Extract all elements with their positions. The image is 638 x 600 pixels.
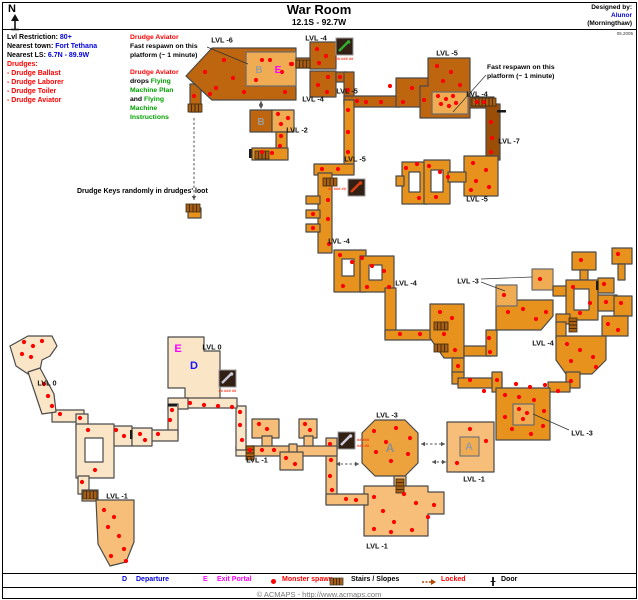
platform-respawn-note: Fast respawn on this platform (~ 1 minut… (487, 63, 555, 81)
aviator-respawn-title: Drudge Aviator (130, 33, 198, 42)
platform-respawn-line1: Fast respawn on this (487, 63, 555, 72)
legend-departure-label: Departure (136, 576, 169, 583)
drudges-header: Drudges: (7, 60, 97, 69)
legend-divider-bottom (2, 587, 636, 588)
legend-monster-spawn-label: Monster spawn (282, 576, 333, 583)
platform-respawn-line2: platform (~ 1 minute) (487, 72, 555, 81)
aviator-respawn-line1: Fast respawn on this (130, 42, 198, 51)
nearest-ls-row: Nearest LS: 6.7N - 89.9W (7, 51, 97, 60)
page-border (2, 2, 637, 599)
drudge-keys-note: Drudge Keys randomly in drudges' loot (77, 188, 208, 195)
designed-by-label: Designed by: (591, 4, 632, 11)
legend-exit-portal-label: Exit Portal (217, 576, 252, 583)
designer-name: Alunor (611, 12, 632, 19)
drops-item2-part: Instructions (130, 113, 179, 122)
map-date: 05.2005 (617, 31, 633, 36)
drops-item2-part: Flying (144, 96, 164, 103)
map-page: ## ### #### ### #### ### #### ###### ##L… (0, 0, 638, 600)
designer-world: (Morningthaw) (587, 20, 632, 27)
aviator-drops-title: Drudge Aviator (130, 68, 179, 77)
drudge-list-item: - Drudge Aviator (7, 96, 97, 105)
aviator-drops-line3: and Flying (130, 95, 179, 104)
drudge-list-item: - Drudge Ballast (7, 69, 97, 78)
nearest-town-row: Nearest town: Fort Tethana (7, 42, 97, 51)
drudge-list-item: - Drudge Laborer (7, 78, 97, 87)
drops-item2-part: Machine (130, 104, 179, 113)
legend-stairs-icon (329, 577, 345, 587)
legend-exit-portal-symbol: E (203, 576, 208, 583)
drudge-list-item: - Drudge Toiler (7, 87, 97, 96)
aviator-drops-note: Drudge Aviator drops Flying Machine Plan… (130, 68, 179, 122)
legend-door-icon (488, 576, 498, 587)
legend-departure-symbol: D (122, 576, 127, 583)
info-panel: Lvl Restriction: 80+ Nearest town: Fort … (7, 33, 97, 105)
designed-by-block: Designed by: Alunor (Morningthaw) (587, 4, 632, 28)
drops-item1-part: Flying (151, 78, 171, 85)
lvl-restriction-row: Lvl Restriction: 80+ (7, 33, 97, 42)
lvl-restriction-label: Lvl Restriction: (7, 34, 58, 41)
drops-item1-part: Machine Plan (130, 86, 179, 95)
legend-monster-spawn-icon (271, 579, 276, 584)
legend-stairs-label: Stairs / Slopes (351, 576, 399, 583)
page-title: War Room (0, 2, 638, 17)
header-divider (2, 29, 636, 30)
legend-locked-icon (421, 578, 437, 586)
nearest-town-label: Nearest town: (7, 43, 53, 50)
aviator-respawn-note: Drudge Aviator Fast respawn on this plat… (130, 33, 198, 60)
nearest-ls-label: Nearest LS: (7, 52, 46, 59)
map-coordinates: 12.1S - 92.7W (0, 17, 638, 27)
legend-divider-top (2, 573, 636, 574)
and-word: and (130, 96, 142, 103)
aviator-respawn-line2: platform (~ 1 minute) (130, 51, 198, 60)
legend-locked-label: Locked (441, 576, 466, 583)
copyright: © ACMAPS - http://www.acmaps.com (0, 590, 638, 599)
drops-word: drops (130, 78, 149, 85)
lvl-restriction-value: 80+ (60, 34, 72, 41)
nearest-ls-value: 6.7N - 89.9W (48, 52, 89, 59)
aviator-drops-line1: drops Flying (130, 77, 179, 86)
legend-door-label: Door (501, 576, 517, 583)
nearest-town-value: Fort Tethana (55, 43, 97, 50)
